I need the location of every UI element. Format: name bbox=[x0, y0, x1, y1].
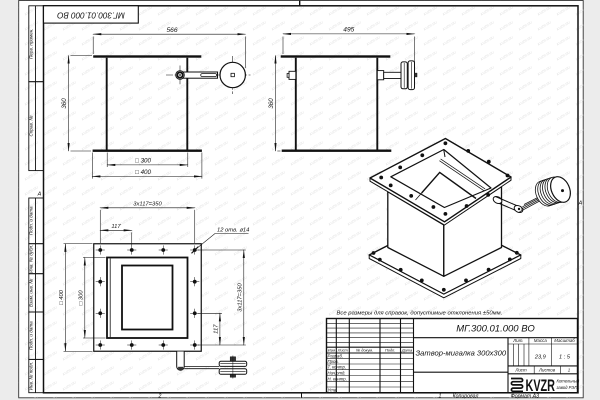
svg-text:Инв. № дубл.: Инв. № дубл. bbox=[28, 245, 33, 273]
svg-text:А: А bbox=[37, 192, 42, 198]
svg-text:□ 300: □ 300 bbox=[135, 158, 151, 165]
svg-text:Т. контр.: Т. контр. bbox=[328, 365, 347, 370]
svg-text:□ 300: □ 300 bbox=[78, 290, 84, 306]
svg-text:Взам. инв. №: Взам. инв. № bbox=[28, 279, 33, 307]
svg-text:□ 400: □ 400 bbox=[59, 289, 65, 305]
svg-text:А: А bbox=[578, 201, 583, 207]
svg-text:Разраб.: Разраб. bbox=[328, 353, 344, 358]
svg-text:23,9: 23,9 bbox=[534, 354, 546, 360]
svg-text:Копировал: Копировал bbox=[453, 394, 479, 400]
svg-text:Подп. и дата: Подп. и дата bbox=[28, 321, 33, 350]
svg-text:117: 117 bbox=[111, 224, 121, 230]
svg-text:Лист: Лист bbox=[514, 368, 527, 373]
svg-text:3x117=350: 3x117=350 bbox=[237, 283, 243, 312]
svg-text:566: 566 bbox=[166, 27, 177, 34]
svg-text:МГ.300.01.000 ВО: МГ.300.01.000 ВО bbox=[456, 324, 535, 335]
svg-text:№ докум.: № докум. bbox=[356, 348, 373, 353]
svg-text:Масса: Масса bbox=[534, 338, 548, 343]
svg-text:360: 360 bbox=[268, 98, 275, 109]
svg-text:Все размеры для справок, допус: Все размеры для справок, допустимые откл… bbox=[337, 311, 503, 317]
svg-text:Лист: Лист bbox=[337, 348, 349, 353]
svg-text:KVZR: KVZR bbox=[526, 377, 556, 395]
svg-text:МГ.300.01.000 ВО: МГ.300.01.000 ВО bbox=[57, 10, 125, 19]
svg-text:Лит.: Лит. bbox=[512, 338, 523, 343]
svg-text:Пров.: Пров. bbox=[328, 359, 339, 364]
svg-text:Н. контр.: Н. контр. bbox=[328, 376, 347, 381]
svg-text:Затвор-мигалка 300х300: Затвор-мигалка 300х300 bbox=[416, 349, 507, 358]
svg-text:Масштаб: Масштаб bbox=[554, 338, 575, 343]
svg-text:завод РЭП: завод РЭП bbox=[556, 385, 579, 390]
svg-text:Подп. и дата: Подп. и дата bbox=[28, 206, 33, 235]
svg-text:Утв.: Утв. bbox=[328, 388, 338, 393]
svg-text:Изм: Изм bbox=[328, 348, 336, 353]
svg-text:Перв. примен.: Перв. примен. bbox=[28, 28, 33, 59]
svg-text:1: 1 bbox=[439, 394, 442, 400]
svg-text:360: 360 bbox=[61, 98, 68, 109]
svg-text:3x117=350: 3x117=350 bbox=[133, 202, 162, 208]
svg-text:Котельный: Котельный bbox=[557, 379, 580, 384]
svg-text:117: 117 bbox=[213, 324, 219, 334]
svg-text:Инв. № подл.: Инв. № подл. bbox=[28, 362, 33, 391]
svg-text:12 отв. ⌀14: 12 отв. ⌀14 bbox=[217, 228, 249, 234]
svg-text:Справ. №: Справ. № bbox=[28, 116, 33, 137]
svg-text:Листов: Листов bbox=[538, 368, 556, 373]
svg-text:Нач.отд.: Нач.отд. bbox=[328, 371, 346, 376]
svg-text:□ 400: □ 400 bbox=[135, 169, 151, 176]
svg-text:1 : 5: 1 : 5 bbox=[559, 354, 571, 360]
svg-text:Дата: Дата bbox=[401, 348, 413, 353]
svg-text:2: 2 bbox=[158, 394, 162, 400]
svg-text:Подп.: Подп. bbox=[385, 348, 395, 353]
svg-text:495: 495 bbox=[343, 27, 354, 34]
